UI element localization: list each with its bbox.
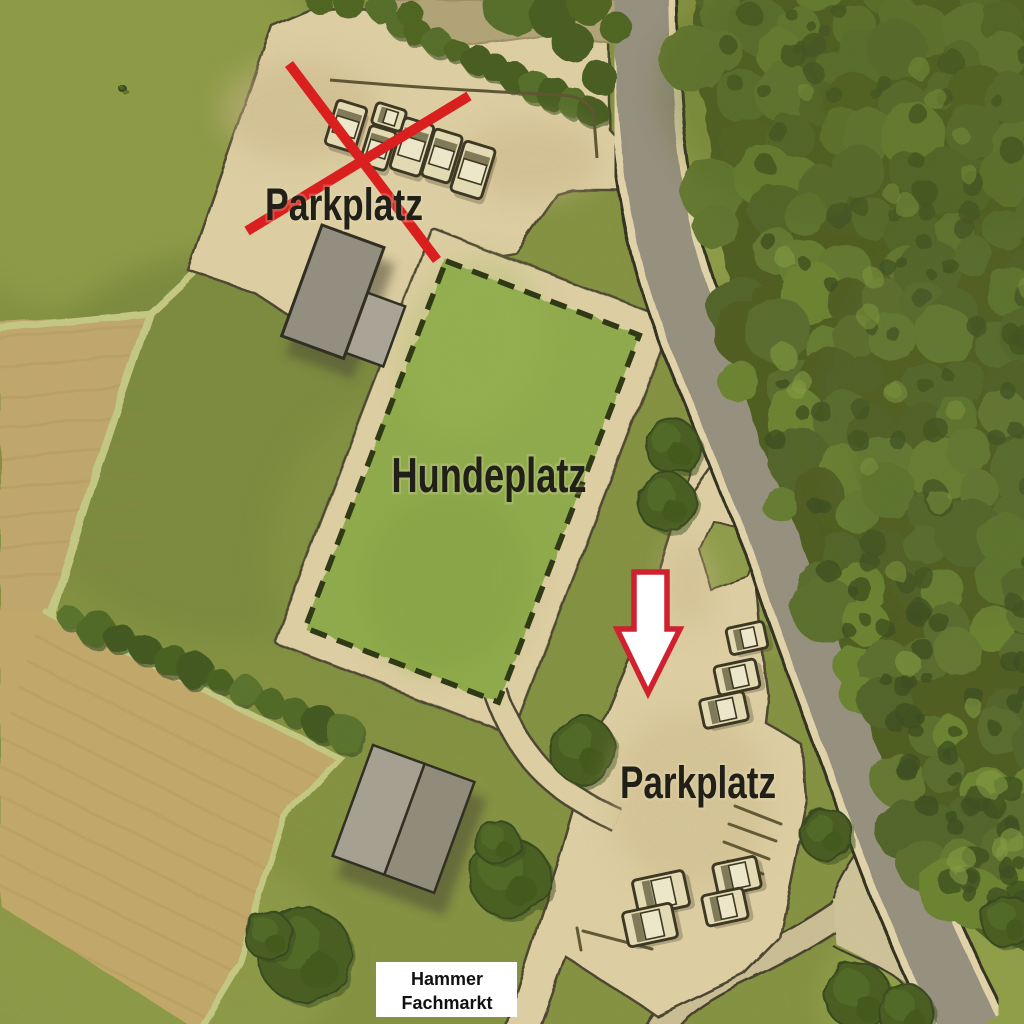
svg-text:Parkplatz: Parkplatz [265,179,423,230]
svg-text:Hundeplatz: Hundeplatz [392,449,587,503]
svg-text:Fachmarkt: Fachmarkt [401,993,492,1013]
svg-text:Parkplatz: Parkplatz [620,757,776,808]
svg-text:Hammer: Hammer [411,969,483,989]
